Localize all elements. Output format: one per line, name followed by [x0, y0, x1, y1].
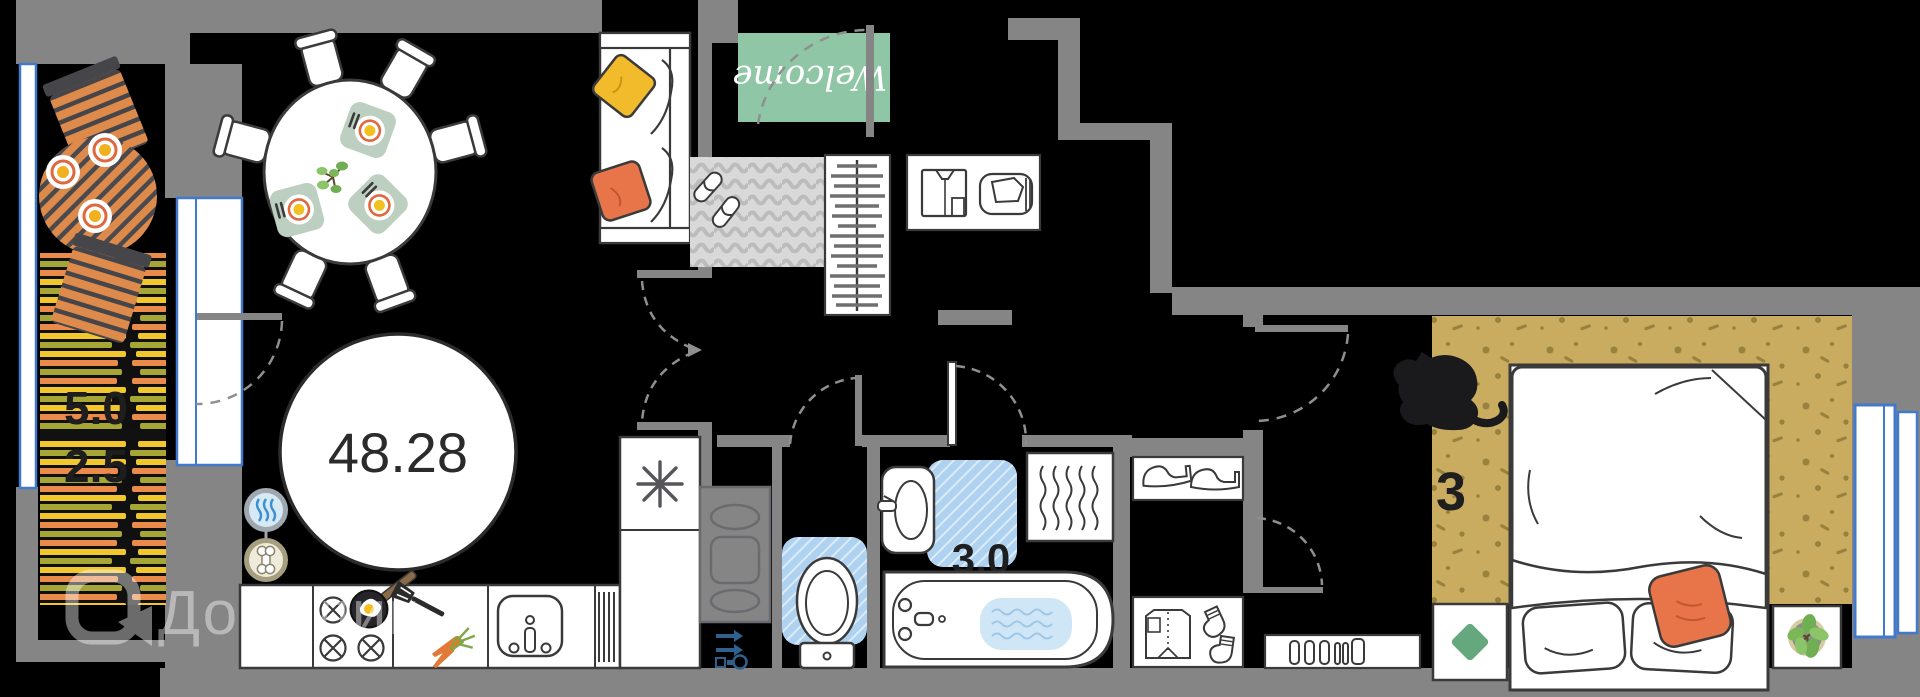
wall	[188, 0, 602, 33]
nightstand-icon	[1773, 606, 1841, 668]
wall	[938, 310, 1012, 325]
towel-warmer-icon	[1027, 453, 1113, 541]
toilet-icon	[797, 558, 857, 668]
total-area-label: 48.28	[328, 421, 468, 484]
shirt-icon	[922, 170, 966, 216]
hanger-closet-icon	[825, 155, 890, 315]
wall	[1243, 430, 1263, 593]
floorplan-canvas: 5.0 2.5	[0, 0, 1920, 697]
balcony-door-leaf	[197, 313, 282, 320]
wall	[867, 447, 880, 668]
wall	[637, 270, 712, 278]
wall	[16, 0, 190, 64]
wall	[862, 435, 882, 447]
radiator-icon	[1265, 635, 1420, 668]
kitchen-sink-icon	[498, 596, 562, 656]
sofa-icon	[589, 33, 690, 243]
wall	[698, 0, 738, 43]
floorplan-screenshot: 5.0 2.5	[0, 0, 1920, 697]
bedroom-windows	[1855, 405, 1917, 637]
bathtub-icon	[884, 572, 1113, 667]
bath-water	[980, 598, 1072, 650]
balcony-window	[20, 64, 36, 488]
wall	[1113, 447, 1130, 668]
wall	[717, 435, 790, 447]
window-icon	[177, 198, 242, 465]
entrance-door-leaf	[866, 25, 874, 137]
wall	[637, 422, 712, 430]
nightstand-icon	[1433, 604, 1507, 680]
wash-basin-icon	[878, 467, 934, 553]
window-icon	[1855, 405, 1895, 637]
bathroom-door-leaf	[948, 362, 956, 445]
accent-pillow-orange	[1646, 562, 1733, 649]
wall	[772, 445, 782, 668]
bedroom-number-label: 3	[1436, 462, 1466, 522]
wall	[1022, 435, 1132, 447]
welcome-mat-text: Welcome	[732, 57, 887, 97]
toilet-door-leaf	[855, 375, 862, 446]
duvet	[1512, 367, 1766, 583]
heating-waves-badge-icon	[247, 491, 286, 530]
fridge	[620, 437, 700, 668]
bed-pillow	[1522, 602, 1626, 675]
bedroom-door-leaf	[1255, 325, 1348, 332]
bedroom: 3	[1393, 316, 1917, 690]
utility-shaft-icon	[700, 487, 770, 622]
wall	[1058, 18, 1080, 140]
watermark-text: Домклик	[158, 579, 418, 648]
wall	[16, 487, 38, 662]
wall	[1130, 438, 1243, 457]
bed-icon	[1510, 365, 1768, 690]
folded-shirt-icon	[1146, 610, 1190, 658]
bag-icon	[980, 174, 1032, 214]
balcony-area-upper-label: 5.0	[64, 382, 128, 434]
linen-wardrobe	[1133, 597, 1243, 667]
fridge-snowflake-icon	[638, 462, 682, 506]
wall	[1150, 123, 1172, 293]
pet-bone-badge-icon	[247, 541, 286, 580]
wall	[880, 435, 950, 447]
shoe-shelf	[1133, 457, 1243, 500]
balcony-area-lower-label: 2.5	[64, 440, 128, 492]
entry-wardrobe	[907, 155, 1040, 230]
window-icon	[1898, 412, 1917, 633]
entry-rug-icon	[690, 157, 825, 267]
wall	[1243, 313, 1263, 327]
wall	[1172, 287, 1920, 315]
closet-door-leaf	[1255, 587, 1323, 593]
